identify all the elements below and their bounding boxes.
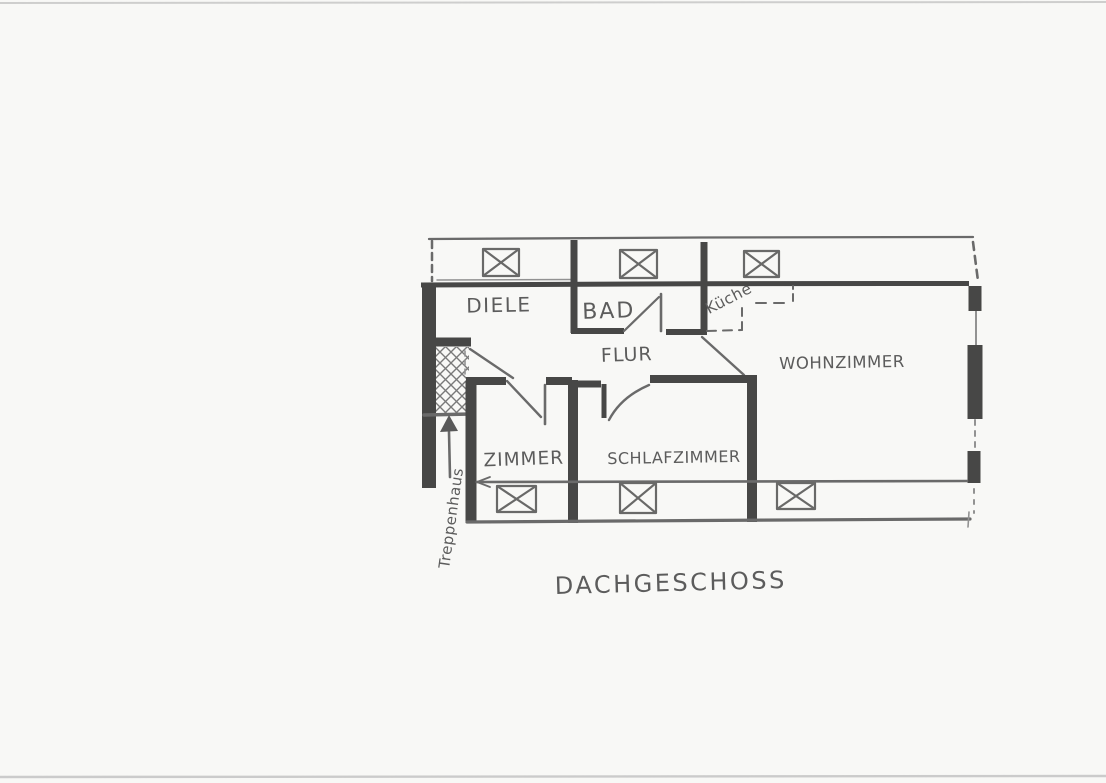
schlafzimmer-door	[609, 385, 649, 420]
window-icon	[777, 483, 815, 509]
window-icon	[744, 251, 779, 277]
window-icon	[620, 483, 656, 513]
window-icon	[620, 250, 657, 278]
bottom-outer-wall	[467, 512, 970, 527]
room-label-flur: FLUR	[601, 343, 653, 367]
room-label-diele: DIELE	[466, 292, 532, 317]
room-label-schlafzimmer: SCHLAFZIMMER	[607, 447, 741, 468]
roof-eave-outline	[421, 237, 978, 287]
room-label-zimmer: ZIMMER	[483, 448, 564, 472]
window-icon	[483, 249, 519, 276]
floor-plan-scan: DIELE BAD Küche FLUR WOHNZIMMER ZIMMER S…	[0, 0, 1106, 783]
knee-wall-line	[477, 477, 967, 487]
annotation-treppenhaus: Treppenhaus	[435, 467, 467, 571]
right-outer-wall	[974, 286, 976, 513]
room-label-wohnzimmer: WOHNZIMMER	[779, 352, 905, 373]
scan-edge-artifacts	[0, 2, 1106, 777]
zimmer-door	[507, 381, 545, 424]
window-icon	[497, 486, 536, 512]
plan-title: DACHGESCHOSS	[554, 566, 787, 600]
floor-plan-svg: DIELE BAD Küche FLUR WOHNZIMMER ZIMMER S…	[0, 0, 1106, 783]
room-label-bad: BAD	[582, 298, 636, 325]
wohnzimmer-door	[702, 337, 744, 375]
